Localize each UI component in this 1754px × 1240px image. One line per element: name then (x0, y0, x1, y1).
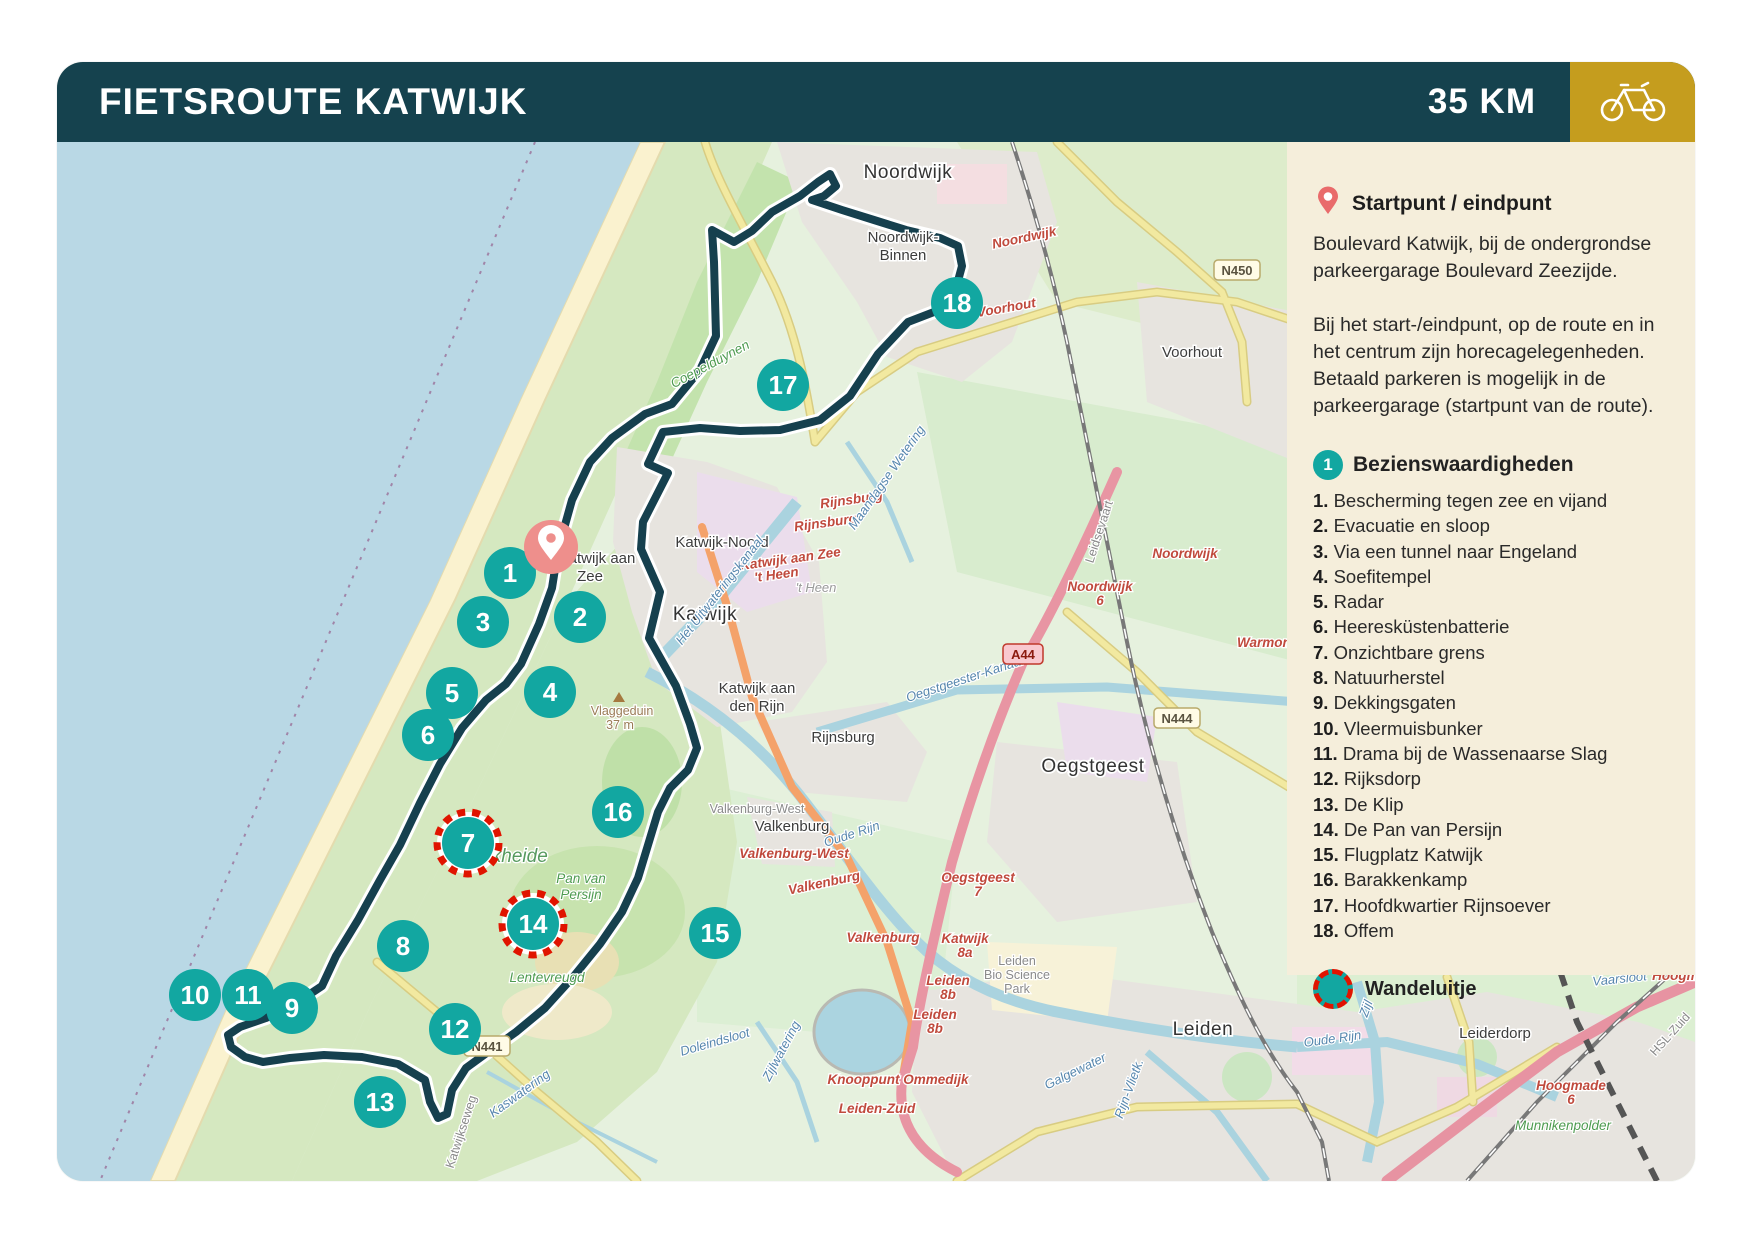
map-label: 8b (927, 1021, 943, 1036)
svg-text:A44: A44 (1011, 647, 1036, 662)
map-marker-4[interactable]: 4 (524, 666, 576, 718)
leiden-park (1222, 1052, 1272, 1102)
poi-item: 11. Drama bij de Wassenaarse Slag (1313, 741, 1665, 766)
location-pin-icon (1313, 186, 1343, 221)
poi-item: 1. Bescherming tegen zee en vijand (1313, 488, 1665, 513)
poi-badge-icon: 1 (1313, 450, 1343, 480)
map-label: den Rijn (729, 698, 784, 715)
svg-text:11: 11 (234, 980, 262, 1010)
svg-text:N450: N450 (1221, 263, 1252, 278)
map-marker-15[interactable]: 15 (689, 907, 741, 959)
svg-text:6: 6 (421, 720, 435, 750)
poi-item: 10. Vleermuisbunker (1313, 716, 1665, 741)
map-label: Knooppunt Ommedijk (828, 1072, 970, 1087)
map-label: Bio Science (984, 968, 1050, 982)
road-badge-N450: N450 (1214, 260, 1260, 280)
map-label: Oegstgeest (941, 870, 1015, 885)
svg-text:15: 15 (701, 918, 730, 948)
map-label: 6 (1096, 593, 1104, 608)
map-label: 't Heen (796, 580, 837, 595)
header-bar: FIETSROUTE KATWIJK 35 KM (57, 62, 1695, 142)
svg-text:7: 7 (461, 828, 475, 858)
map-label: Voorhout (1162, 344, 1223, 361)
map-label: Park (1004, 982, 1030, 996)
map-label: Leiden (1173, 1019, 1234, 1040)
poi-item: 17. Hoofdkwartier Rijnsoever (1313, 893, 1665, 918)
page: FIETSROUTE KATWIJK 35 KM (0, 0, 1754, 1240)
map-marker-8[interactable]: 8 (377, 920, 429, 972)
start-title: Startpunt / eindpunt (1352, 192, 1551, 216)
info-panel: Startpunt / eindpunt Boulevard Katwijk, … (1287, 142, 1695, 975)
map-marker-16[interactable]: 16 (592, 786, 644, 838)
map-label: Katwijk (941, 931, 990, 946)
map-label: Pan van (556, 871, 606, 886)
map-marker-10[interactable]: 10 (169, 969, 221, 1021)
bicycle-icon (1598, 76, 1668, 129)
walk-loop-icon (1313, 969, 1353, 1009)
map-label: Noordwijk- (868, 229, 939, 246)
map-label: 8a (957, 945, 973, 960)
poi-item: 2. Evacuatie en sloop (1313, 513, 1665, 538)
road-badge-A44: A44 (1003, 644, 1043, 664)
poi-item: 14. De Pan van Persijn (1313, 817, 1665, 842)
svg-text:2: 2 (573, 602, 587, 632)
map-label: Leiden (998, 954, 1036, 968)
svg-text:1: 1 (503, 558, 517, 588)
map-label: Hoogmade (1536, 1078, 1606, 1093)
map-marker-12[interactable]: 12 (429, 1003, 481, 1055)
map-label: 8b (940, 987, 956, 1002)
map-label: Oegstgeest (1041, 756, 1144, 777)
map-label: Vlaggeduin (591, 704, 654, 718)
map-label: Munnikenpolder (1515, 1118, 1612, 1133)
svg-text:16: 16 (604, 797, 633, 827)
svg-text:13: 13 (366, 1087, 395, 1117)
map-label: Lentevreugd (509, 970, 585, 985)
start-section-header: Startpunt / eindpunt (1313, 186, 1665, 221)
svg-text:17: 17 (769, 370, 798, 400)
map-marker-11[interactable]: 11 (222, 969, 274, 1021)
svg-text:14: 14 (519, 909, 548, 939)
map-label: Valkenburg-West (710, 802, 805, 816)
poi-item: 4. Soefitempel (1313, 564, 1665, 589)
map-label: Noordwijk (864, 162, 953, 183)
poi-item: 3. Via een tunnel naar Engeland (1313, 539, 1665, 564)
map-marker-13[interactable]: 13 (354, 1076, 406, 1128)
poi-item: 5. Radar (1313, 589, 1665, 614)
map-marker-3[interactable]: 3 (457, 596, 509, 648)
map-label: Zee (577, 568, 603, 585)
map-label: Leiderdorp (1459, 1025, 1531, 1042)
road-badge-N444: N444 (1154, 708, 1200, 728)
map-label: Valkenburg (755, 818, 830, 835)
poi-item: 7. Onzichtbare grens (1313, 640, 1665, 665)
start-body-1: Boulevard Katwijk, bij de ondergrondse p… (1313, 231, 1665, 285)
poi-item: 18. Offem (1313, 918, 1665, 943)
map-label: Leiden (913, 1007, 957, 1022)
map-label: Noordwijk (1152, 546, 1219, 561)
svg-text:12: 12 (441, 1014, 470, 1044)
svg-text:3: 3 (476, 607, 490, 637)
start-body-2: Bij het start-/eindpunt, op de route en … (1313, 312, 1665, 420)
start-pin[interactable] (524, 520, 578, 574)
map-label: Leiden (926, 973, 970, 988)
poi-item: 13. De Klip (1313, 792, 1665, 817)
map-marker-9[interactable]: 9 (266, 982, 318, 1034)
map-marker-6[interactable]: 6 (402, 709, 454, 761)
svg-text:5: 5 (445, 678, 459, 708)
route-card: FIETSROUTE KATWIJK 35 KM (57, 62, 1695, 1181)
map-label: Rijnsburg (811, 729, 874, 746)
legend-label: Wandeluitje (1365, 978, 1476, 1001)
svg-text:10: 10 (181, 980, 210, 1010)
map-marker-17[interactable]: 17 (757, 359, 809, 411)
poi-item: 6. Heeresküstenbatterie (1313, 614, 1665, 639)
map-label: Noordwijk (1067, 579, 1134, 594)
legend-row: Wandeluitje (1313, 969, 1665, 1009)
poi-section-header: 1 Bezienswaardigheden (1313, 450, 1665, 480)
page-title: FIETSROUTE KATWIJK (99, 81, 527, 123)
map-label: 37 m (606, 718, 634, 732)
map-label: 6 (1567, 1092, 1575, 1107)
poi-item: 15. Flugplatz Katwijk (1313, 842, 1665, 867)
map-marker-18[interactable]: 18 (931, 277, 983, 329)
bicycle-badge (1570, 62, 1695, 142)
poi-item: 12. Rijksdorp (1313, 766, 1665, 791)
svg-text:N444: N444 (1161, 711, 1193, 726)
map-label: Leiden-Zuid (839, 1101, 916, 1116)
distance-label: 35 KM (1428, 82, 1536, 122)
poi-item: 8. Natuurherstel (1313, 665, 1665, 690)
map-label: Valkenburg-West (739, 846, 849, 861)
map-label: Persijn (560, 887, 601, 902)
map-label: Katwijk aan (719, 680, 796, 697)
map-marker-14[interactable]: 14 (502, 893, 564, 955)
poi-item: 16. Barakkenkamp (1313, 867, 1665, 892)
map-marker-7[interactable]: 7 (437, 812, 499, 874)
map-label: Binnen (880, 247, 927, 264)
map-label: Valkenburg (846, 930, 920, 945)
svg-text:8: 8 (396, 931, 410, 961)
poi-list: 1. Bescherming tegen zee en vijand2. Eva… (1313, 488, 1665, 943)
poi-title: Bezienswaardigheden (1353, 453, 1574, 477)
svg-text:9: 9 (285, 993, 299, 1023)
valkenburgse-meer (814, 990, 910, 1074)
svg-text:4: 4 (543, 677, 558, 707)
map-marker-2[interactable]: 2 (554, 591, 606, 643)
poi-item: 9. Dekkingsgaten (1313, 690, 1665, 715)
svg-text:18: 18 (943, 288, 972, 318)
